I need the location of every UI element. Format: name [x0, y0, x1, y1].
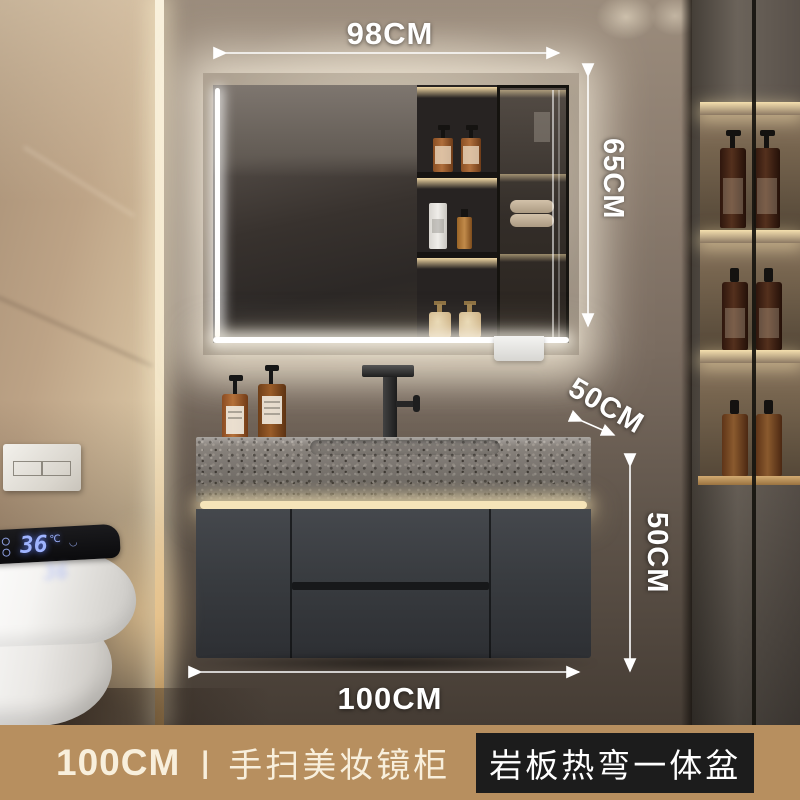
amber-bottle	[756, 282, 782, 350]
shelf-divider	[417, 252, 497, 258]
shelf-light	[500, 90, 566, 98]
amber-bottle	[720, 148, 746, 228]
cabinet-panel-seam	[489, 509, 491, 658]
amber-bottle	[722, 414, 748, 476]
label-text-line	[264, 401, 280, 403]
banner-size-label: 100CM	[56, 742, 180, 784]
bottle-pump-stem	[233, 380, 237, 394]
label-text-line	[264, 407, 280, 409]
banner-highlight-tag: 岩板热弯一体盆	[476, 733, 754, 793]
label-text-line	[264, 413, 280, 415]
toilet-control-display: 36 ℃ ◡	[0, 524, 121, 565]
shelf-light	[417, 87, 497, 98]
bottle-label	[226, 406, 244, 434]
rolled-towel	[510, 200, 554, 213]
display-reflection: 36	[43, 559, 68, 584]
niche-shelf-compartment	[700, 230, 800, 350]
glass-highlight	[552, 90, 554, 338]
under-counter-led	[200, 501, 587, 509]
cabinet-shadow	[190, 654, 597, 672]
banner-product-name: 手扫美妆镜柜	[228, 738, 450, 787]
drawer-handle-groove	[292, 582, 489, 590]
shelf-light	[417, 178, 497, 189]
bottle-pump-stem	[269, 370, 273, 384]
shelf-light	[500, 174, 566, 182]
amber-bottle	[754, 148, 780, 228]
jar-pump-stem	[467, 304, 472, 312]
mirror-door	[213, 85, 417, 343]
niche-shelf-light	[700, 350, 800, 363]
bottle-dropper-cap	[764, 400, 773, 414]
bottle-pump-stem	[764, 135, 769, 148]
small-amber-bottle	[457, 217, 472, 249]
bottle-label	[262, 396, 282, 424]
flush-plate	[3, 444, 81, 491]
glass-partition-frame	[752, 0, 756, 725]
jar-pump-stem	[437, 304, 442, 312]
amber-pump-bottle	[433, 138, 453, 172]
rolled-towel	[510, 214, 554, 227]
bottle-label	[723, 178, 743, 214]
amber-bottle	[722, 282, 748, 350]
bottle-pump-stem	[730, 135, 735, 148]
bottle-cap	[461, 209, 468, 217]
niche-shelf-light	[700, 102, 800, 115]
product-banner: 100CM 丨 手扫美妆镜柜 岩板热弯一体盆	[0, 725, 800, 800]
bottle-label	[759, 308, 779, 339]
soap-bottle	[258, 384, 286, 441]
banner-separator: 丨	[190, 741, 220, 785]
shelf-divider	[417, 172, 497, 178]
faucet-spout	[362, 365, 414, 377]
soap-bottle	[222, 394, 248, 441]
flush-button-full	[42, 461, 71, 476]
cream-jar	[459, 312, 481, 338]
bottle-label	[435, 146, 451, 164]
niche-shelf-compartment	[700, 102, 800, 230]
open-shelf-section	[417, 85, 497, 343]
seat-heat-icon: ◡	[69, 538, 78, 548]
bottle-label	[432, 219, 444, 233]
white-bottle	[429, 203, 447, 249]
bottle-pump-stem	[441, 129, 445, 138]
glass-cabinet-door	[497, 85, 569, 343]
glass-reflection-shape	[534, 112, 550, 142]
bottle-label	[725, 308, 745, 339]
dry-mode-icon	[2, 548, 10, 556]
faucet-handle-knob	[413, 395, 420, 412]
temperature-unit: ℃	[49, 533, 61, 545]
amber-bottle	[756, 414, 782, 476]
label-text-line	[228, 411, 242, 413]
cream-jar	[429, 312, 451, 338]
glass-highlight	[558, 90, 560, 338]
hand-towel	[494, 336, 544, 361]
banner-title-group: 100CM 丨 手扫美妆镜柜	[56, 738, 450, 787]
label-text-line	[228, 417, 242, 419]
bottle-label	[463, 146, 479, 164]
amber-pump-bottle	[461, 138, 481, 172]
wooden-ledge	[698, 476, 800, 485]
temperature-readout: 36	[19, 533, 48, 557]
bottle-label	[757, 178, 777, 214]
bottle-dropper-cap	[764, 268, 773, 282]
mirror-led-strip	[215, 88, 220, 338]
display-icons	[2, 537, 11, 556]
mirror-reflection	[213, 85, 417, 177]
mirror-cabinet	[213, 85, 569, 343]
flush-button-half	[13, 461, 42, 476]
shelf-light	[500, 254, 566, 262]
faucet-body	[383, 376, 397, 440]
niche-shelf-light	[700, 230, 800, 243]
bottle-dropper-cap	[730, 400, 739, 414]
integrated-basin	[310, 440, 500, 455]
product-photo-page: 36 ℃ ◡ 36 98CM 65CM 50CM 50CM 100CM 100C…	[0, 0, 800, 800]
ceiling-spot-glow	[596, 0, 656, 40]
wash-mode-icon	[2, 537, 10, 545]
bottle-pump-stem	[469, 129, 473, 138]
bottle-dropper-cap	[730, 268, 739, 282]
shelf-light	[417, 258, 497, 269]
niche-shelf-compartment	[700, 350, 800, 476]
vanity-cabinet	[196, 509, 591, 658]
